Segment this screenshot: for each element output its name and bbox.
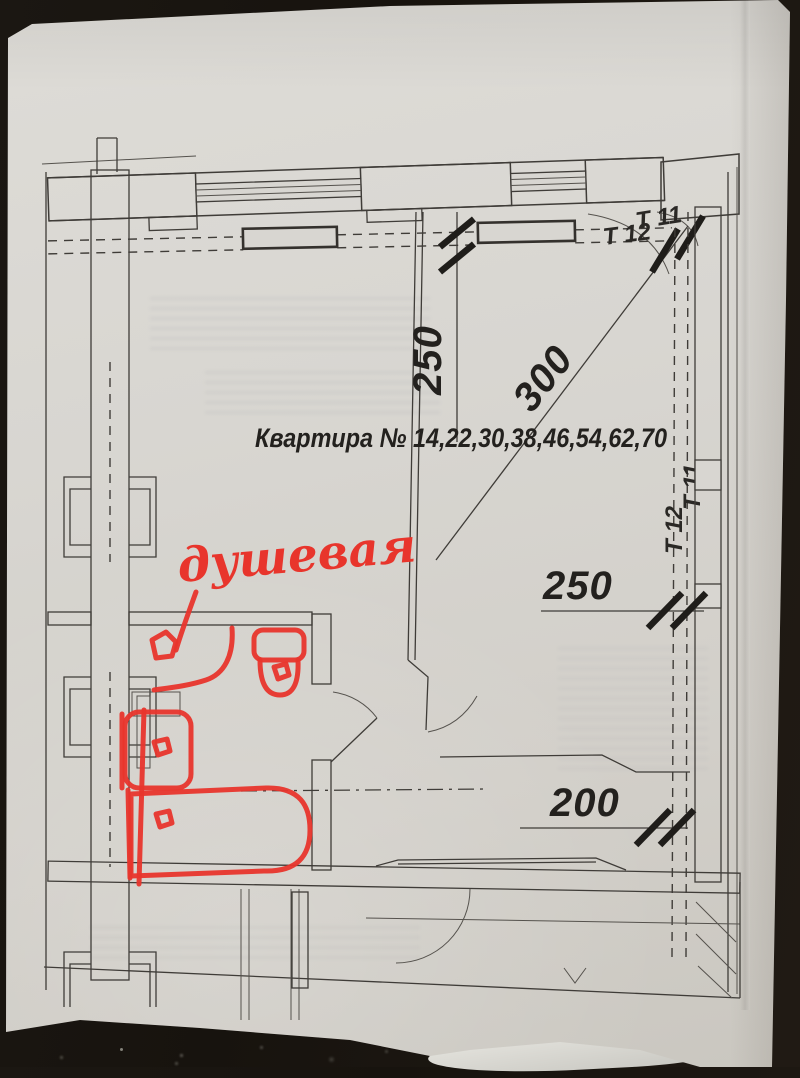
window-opening (511, 171, 587, 191)
vent-bracket (129, 477, 156, 557)
plan-outer-bottom-line (44, 967, 740, 998)
radiator (478, 221, 575, 243)
bottom-exterior-wall (44, 858, 740, 1020)
paper-top-shading (0, 0, 800, 90)
door-swing-arc (333, 692, 377, 718)
photo-background: 250 300 Квартира № 14,22,30,38,46,54,62,… (0, 0, 800, 1067)
dim-250-vertical-label: 250 (406, 325, 450, 396)
dim-250-right: 250 (541, 564, 706, 628)
paper-fold-line (740, 0, 750, 1010)
toilet-drain-sketch (274, 664, 289, 679)
riser-label-t12-side: Т 12 (661, 505, 688, 554)
door-swing-arc (428, 696, 477, 732)
vent-bracket (64, 677, 91, 757)
dim-300-label: 300 (504, 337, 582, 419)
apartment-number-label: Квартира № 14,22,30,38,46,54,62,70 (255, 423, 667, 453)
window-opening (196, 179, 362, 202)
dim-200-label: 200 (549, 781, 620, 825)
threshold-mark (564, 968, 586, 983)
balcony-door-arc (396, 889, 470, 963)
carpet-speckles (120, 1048, 123, 1051)
bathtub-drain-sketch (156, 811, 172, 827)
bathtub-edge-line (128, 790, 130, 878)
shower-handwritten-label: душевая (175, 518, 418, 594)
bathroom-door-leaf (331, 718, 377, 762)
shower-drain-sketch (152, 632, 176, 658)
vent-bracket (64, 477, 91, 557)
red-wall-line (139, 710, 144, 884)
top-left-edge-line (42, 156, 196, 164)
vent-bracket (64, 952, 91, 1007)
dim-250-vertical: 250 (406, 212, 474, 442)
shower-leader-line (176, 592, 196, 650)
washbasin-drain-sketch (154, 739, 170, 755)
paper-sheet: 250 300 Квартира № 14,22,30,38,46,54,62,… (0, 0, 800, 1067)
toilet-tank-sketch (254, 630, 304, 660)
radiator (243, 227, 337, 249)
floor-plan-drawing: 250 300 Квартира № 14,22,30,38,46,54,62,… (36, 112, 746, 1012)
bathroom-walls (48, 612, 377, 870)
top-interior-lines (48, 219, 672, 254)
dim-250-right-label: 250 (542, 564, 613, 608)
central-partition (241, 212, 690, 791)
dim-200-bottom: 200 (520, 781, 694, 845)
riser-lines: Т 12 Т 11 Т 12 Т 11 (601, 201, 706, 957)
vent-bracket (129, 952, 156, 1007)
red-annotations: душевая (122, 518, 418, 884)
